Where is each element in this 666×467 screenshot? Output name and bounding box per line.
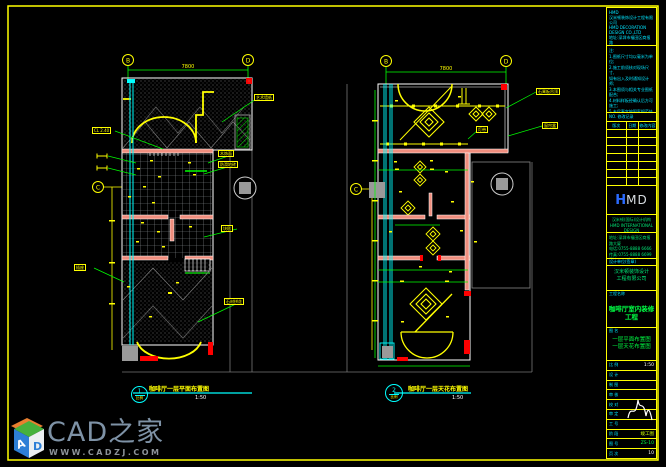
revision-col-header: 版次	[607, 122, 627, 129]
finish-label: 木饰面	[218, 150, 234, 157]
plan1-bottom-hatch	[123, 262, 212, 342]
titleblock-notes: 注:1.图纸尺寸均以毫米为单位;2.施工前须核对现场尺寸,如有出入及时通知设计师…	[607, 46, 656, 113]
logo-letter-h: H	[615, 193, 626, 208]
plan2-red-markers	[397, 255, 471, 361]
plan2-title-bubble: 2 比例	[385, 384, 403, 402]
drawing-name: 一层平面布置图一层天花布置图	[607, 337, 656, 351]
revision-col-header: 修改内容	[639, 122, 656, 129]
revision-row	[607, 162, 656, 170]
dim-text: 7800	[440, 66, 453, 72]
text-line: 1.图纸尺寸均以毫米为单位;	[609, 54, 654, 65]
finish-label: 艺术墙纸	[254, 94, 274, 101]
revision-row	[607, 154, 656, 162]
titleblock-address: 地址:深圳市福田区商报路大厦电话:0755-8888 6666传真:0755-8…	[607, 233, 656, 259]
revision-col-header: 日期	[627, 122, 639, 129]
plan1-title: 咖啡厅一层平面布置图	[149, 384, 209, 393]
plan2-outline	[378, 84, 508, 360]
text-line: 汉米顿装饰设计工程有限公司	[609, 15, 654, 25]
text-line: 工程有限公司	[607, 276, 656, 283]
plan-bubble-scale: 比例	[136, 396, 143, 400]
finish-label: 石材拼花	[224, 298, 244, 305]
info-row: 比 例1:50	[607, 361, 656, 371]
revision-row	[607, 178, 656, 185]
revision-row	[607, 170, 656, 178]
text-line: 电话:0755-8888 6666	[609, 246, 654, 252]
info-row: 设 计	[607, 371, 656, 381]
project-name: 咖啡厅室内装修工程	[607, 305, 656, 321]
text-line: 地址:深圳市福田区商报路大厦	[609, 235, 654, 246]
ceiling-line-ticks	[386, 105, 499, 146]
drawing-name-box: 图 名 一层平面布置图一层天花布置图	[607, 328, 656, 361]
plan1-top-hatch	[123, 79, 251, 149]
info-row: 图 号ZS-10	[607, 439, 656, 449]
grid-letter: D	[504, 59, 509, 66]
text-line: 汉米顿装饰设计	[607, 269, 656, 276]
revision-row	[607, 146, 656, 154]
revision-row	[607, 138, 656, 146]
ceiling-twin-diamonds	[469, 107, 496, 121]
revision-header: 版次 日期 修改内容	[607, 122, 656, 130]
drawing-caption: 图 名	[607, 328, 656, 334]
grid-letter: C	[96, 185, 100, 192]
plan2-tiny-marks	[389, 96, 485, 323]
plan-number: 2	[389, 388, 399, 395]
text-line: 地址:深圳市福田区商报路	[609, 35, 654, 45]
titleblock-brand: 汉米顿(国际)设计机构HMD INTERNATIONAL DESIGN	[607, 215, 656, 233]
text-line: 如有出入及时通知设计师;	[609, 76, 654, 87]
titleblock-firm-info: HMD汉米顿装饰设计工程有限公司HMD DECORATION DESIGN CO…	[607, 8, 656, 46]
dim-text: 7800	[182, 64, 195, 70]
column-block	[369, 182, 385, 198]
revision-table	[607, 130, 656, 186]
stamp-caption: 设计单位(签章)	[607, 259, 656, 266]
grid-letter: B	[126, 58, 130, 65]
context-column-left	[234, 177, 256, 199]
text-line: HMD INTERNATIONAL DESIGN	[607, 223, 656, 234]
project-name-box: 工程名称 咖啡厅室内装修工程	[607, 291, 656, 328]
sheet-frame	[8, 6, 658, 460]
finish-label: 防滑地砖	[218, 161, 238, 168]
plan1-title-bubble: 1 比例	[131, 386, 148, 403]
cadzj-cube-logo: A D	[8, 417, 48, 461]
plan2-scale: 1:50	[452, 395, 463, 401]
plan1-scale: 1:50	[195, 395, 206, 401]
cadzj-url-text: WWW.CADZJ.COM	[49, 448, 162, 457]
hmd-logo: HMD	[607, 186, 656, 215]
plan-bubble-scale: 比例	[391, 395, 398, 399]
text-line: 2.施工前须核对现场尺寸,	[609, 65, 654, 76]
column-block	[122, 346, 138, 361]
ceiling-label: 石膏板吊顶	[536, 88, 560, 95]
text-line: 一层平面布置图	[607, 337, 656, 344]
cad-drawing-canvas: B D C 7800	[0, 0, 666, 467]
ceiling-medallion-top	[414, 107, 444, 137]
wall-end-red	[208, 342, 213, 355]
project-caption: 工程名称	[607, 291, 656, 297]
text-line: 汉米顿(国际)设计机构	[607, 217, 656, 223]
revision-caption: NO. 修改记录	[607, 113, 656, 122]
finish-label: CL 2.40	[92, 127, 111, 134]
context-column-right	[491, 173, 513, 195]
ceiling-label: 窗帘盒	[542, 122, 558, 129]
grid-letter: C	[354, 187, 358, 194]
logo-letters-md: MD	[626, 193, 648, 207]
text-line: HMD DECORATION DESIGN CO.,LTD	[609, 25, 654, 35]
ceiling-medallion-bottom	[410, 288, 442, 320]
cube-letter-d: D	[33, 440, 42, 453]
info-row: 制 图	[607, 381, 656, 391]
plan-number: 1	[135, 389, 145, 396]
plan1-green-cabinet	[235, 115, 250, 149]
wall-end-red	[140, 356, 158, 361]
text-line: 一层天花布置图	[607, 344, 656, 351]
stamp-text: 汉米顿装饰设计工程有限公司	[607, 266, 656, 283]
cadzj-brand-text: CAD之家	[47, 419, 164, 447]
info-row: 页 次10	[607, 449, 656, 458]
floor-plan-1: B D C 7800	[93, 55, 257, 362]
text-line: 3.本图须与相关专业图纸配合;	[609, 87, 654, 98]
plan2-glazing	[384, 84, 392, 360]
grid-letter: D	[246, 58, 251, 65]
drawing-layer: B D C 7800	[0, 0, 666, 467]
plan2-title: 咖啡厅一层天花布置图	[408, 384, 468, 393]
ceiling-label: 灯带	[476, 126, 488, 133]
titleblock-stamp: 设计单位(签章) 汉米顿装饰设计工程有限公司	[607, 259, 656, 291]
signature-scribble	[626, 392, 654, 428]
info-row: 阶 段竣工图	[607, 430, 656, 440]
ceiling-entry-arc	[401, 294, 453, 358]
finish-label: 插座	[74, 264, 86, 271]
switch-symbols	[97, 154, 107, 171]
corner-marker-red	[501, 84, 507, 90]
ceiling-plan-2: B D C 7800	[351, 56, 543, 367]
ceiling-small-fixtures	[401, 161, 440, 255]
revision-row	[607, 130, 656, 138]
finish-label: 块毯	[221, 225, 233, 232]
text-line: 4.材料样板经确认后方可施工;	[609, 98, 654, 109]
grid-letter: B	[384, 59, 388, 66]
